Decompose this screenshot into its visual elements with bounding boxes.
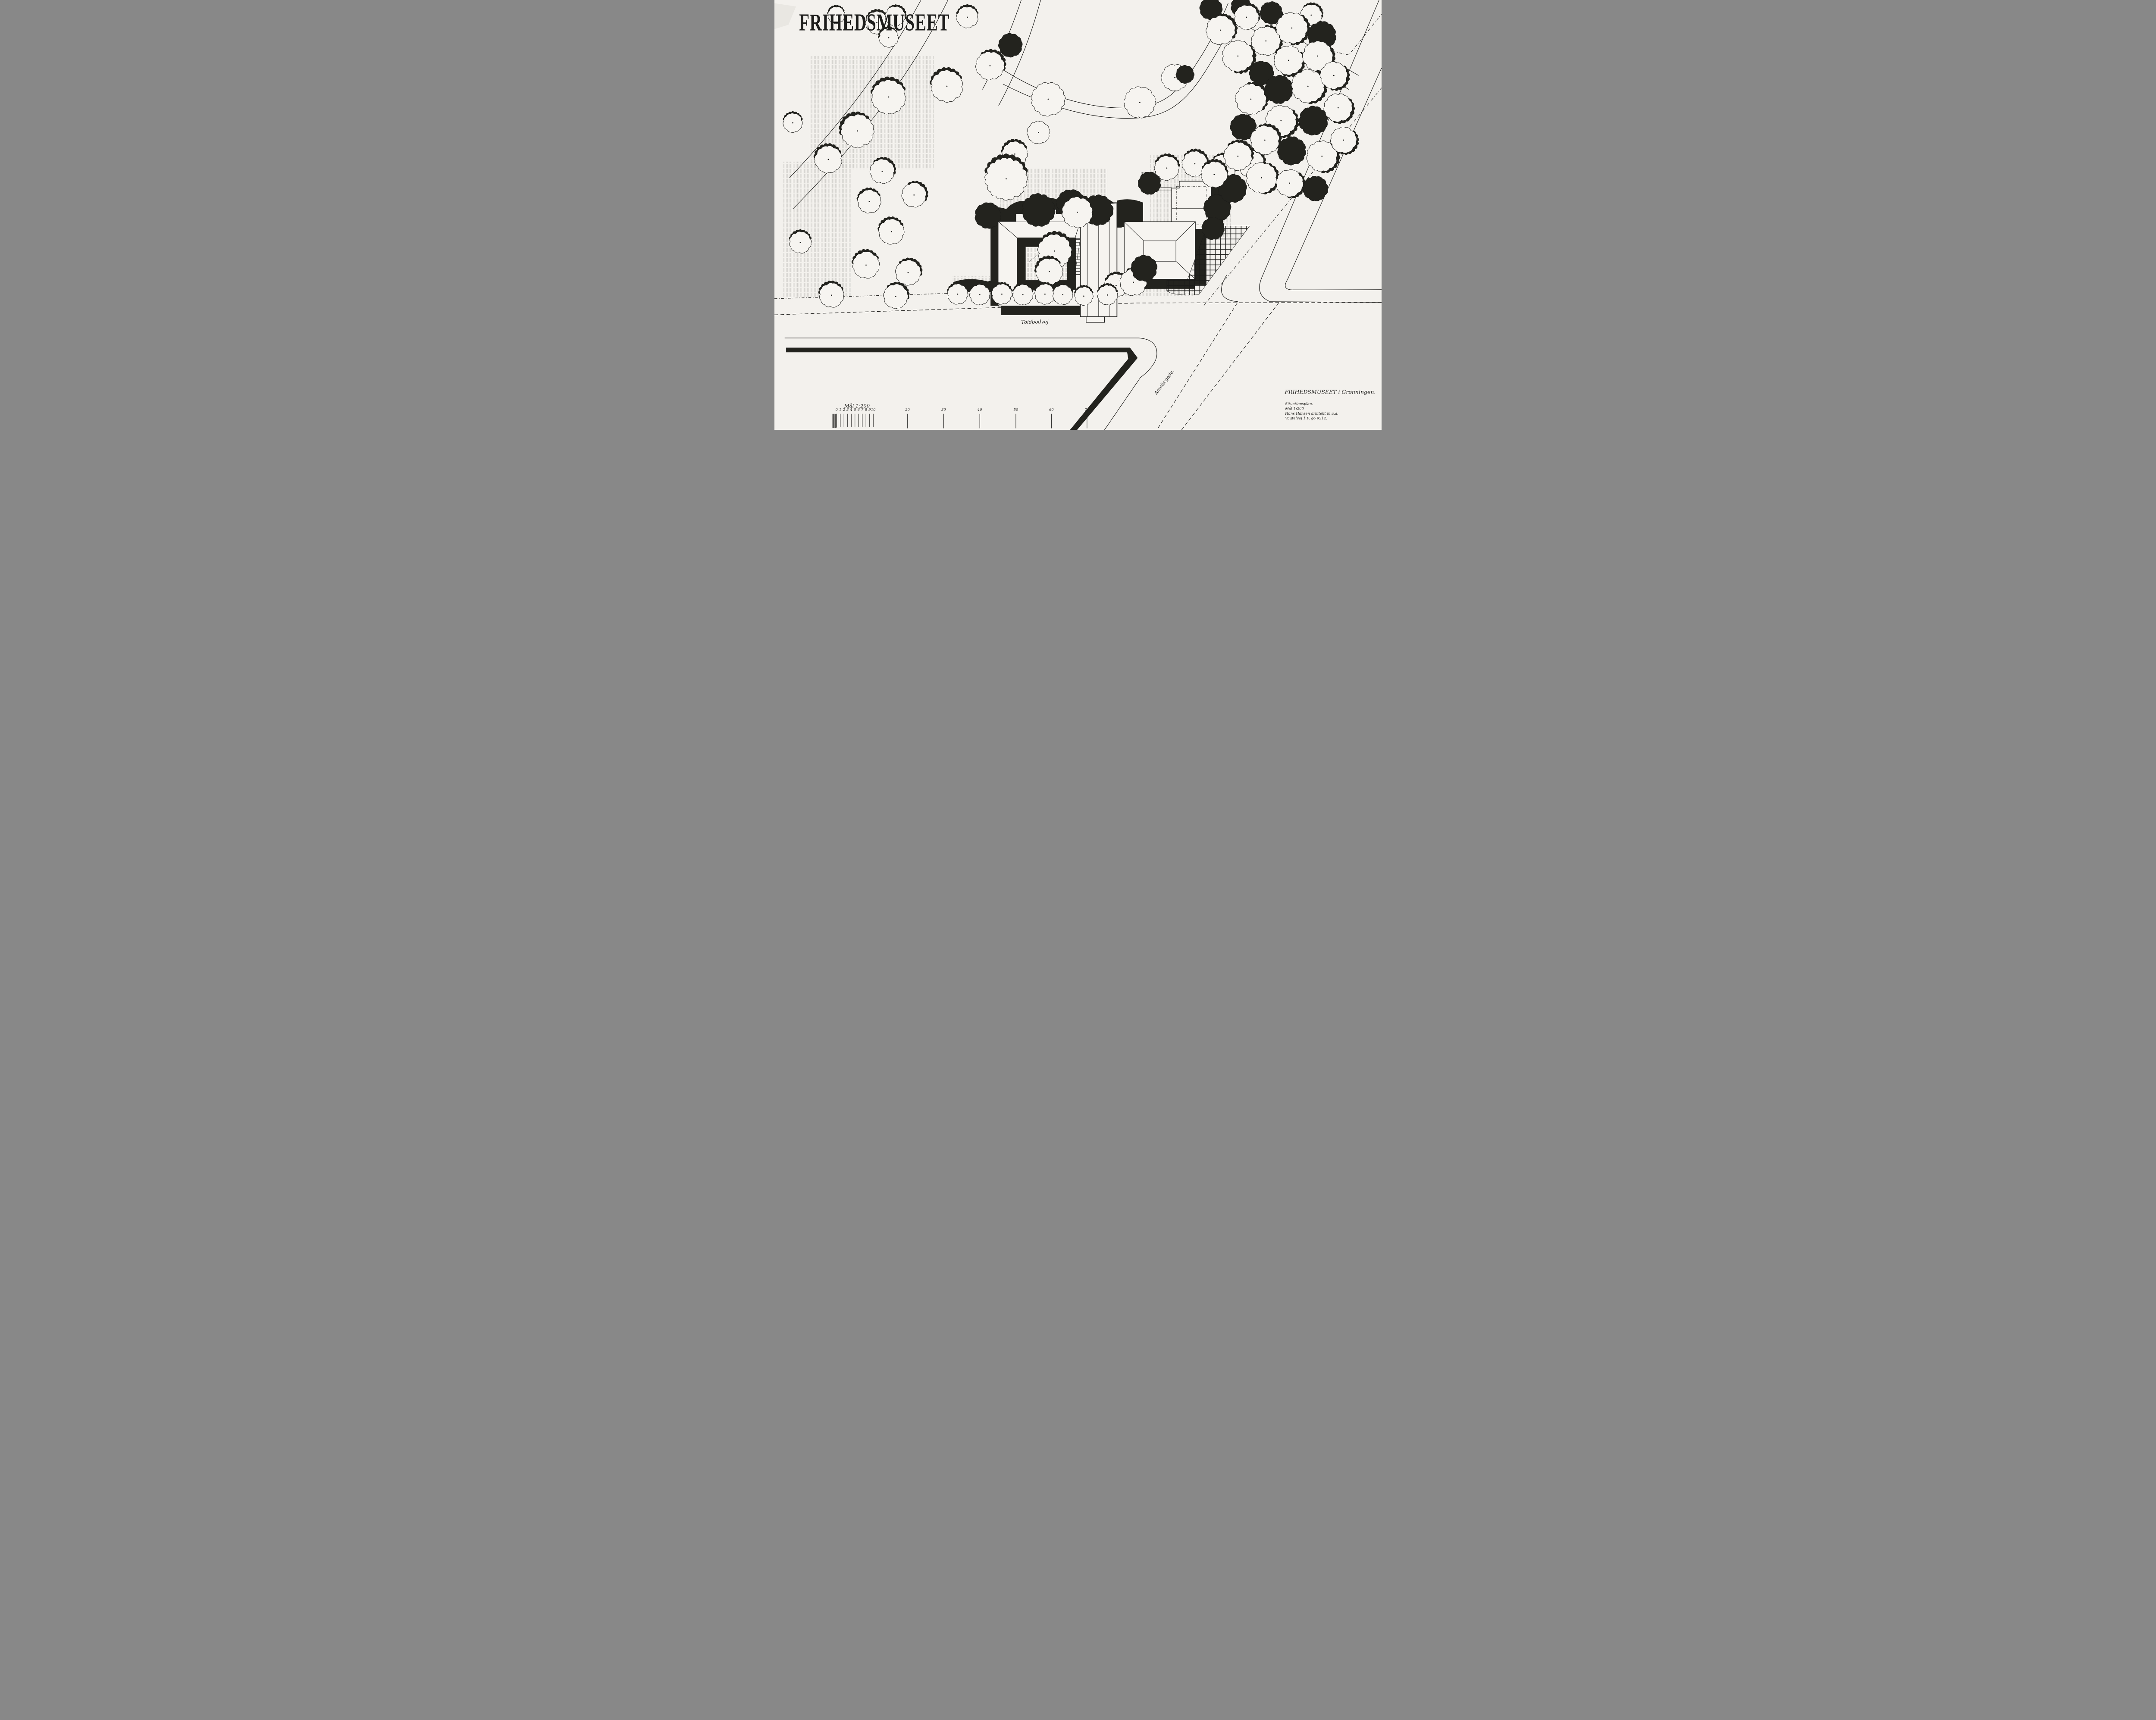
site-plan-sheet: FRIHEDSMUSEET Toldbodvej Amaliegade. Mål… xyxy=(774,0,1382,430)
tree-trunk-dot xyxy=(1310,15,1312,16)
plan-title: FRIHEDSMUSEET xyxy=(799,9,950,36)
tree-trunk-dot xyxy=(1343,140,1344,141)
tree-trunk-dot xyxy=(990,65,991,66)
tree-trunk-dot xyxy=(1338,107,1339,109)
scale-minor-label: 10 xyxy=(871,407,875,412)
tree-trunk-dot xyxy=(865,265,867,266)
tree-trunk-dot xyxy=(1265,41,1266,42)
title-block-address: Vagtelvej 1 F. go 9512. xyxy=(1285,416,1327,421)
tree-trunk-dot xyxy=(1288,60,1289,61)
tree-trunk-dot xyxy=(869,201,870,202)
site-plan-drawing: FRIHEDSMUSEET Toldbodvej Amaliegade. Mål… xyxy=(774,0,1382,430)
tree-trunk-dot xyxy=(792,122,793,124)
slab-entrance-foot xyxy=(1086,317,1104,322)
tree-trunk-dot xyxy=(1054,250,1056,252)
dark-tree xyxy=(1202,217,1224,240)
tree-trunk-dot xyxy=(1083,295,1084,297)
tree-trunk-dot xyxy=(1077,212,1078,213)
scale-minor-label: 8 xyxy=(865,407,867,412)
scale-minor-label: 5 xyxy=(854,407,856,412)
tree-trunk-dot xyxy=(1044,294,1046,295)
street-label-toldbodvej: Toldbodvej xyxy=(1021,319,1049,325)
tree-trunk-dot xyxy=(828,159,829,160)
tree-trunk-dot xyxy=(888,97,890,98)
scale-minor-label: 6 xyxy=(858,407,860,412)
tree-trunk-dot xyxy=(1264,140,1266,141)
scale-major-label: 20 xyxy=(905,407,909,412)
scale-minor-label: 4 xyxy=(850,407,852,412)
tree-trunk-dot xyxy=(1022,294,1024,295)
ground-hatch-west xyxy=(783,162,852,297)
tree-trunk-dot xyxy=(800,242,801,243)
title-block-sheet: Situationsplan. xyxy=(1285,402,1313,406)
tree-trunk-dot xyxy=(891,231,892,232)
tree-trunk-dot xyxy=(1133,282,1134,283)
tree-trunk-dot xyxy=(1237,156,1238,157)
tree-trunk-dot xyxy=(913,194,915,196)
title-block-architect: Hans Hansen arkitekt m.a.a. xyxy=(1285,412,1338,416)
tree-trunk-dot xyxy=(1166,168,1167,169)
tree-trunk-dot xyxy=(888,37,890,38)
tree-trunk-dot xyxy=(957,294,959,295)
scale-major-label: 30 xyxy=(941,407,946,412)
tree-trunk-dot xyxy=(831,294,832,296)
tree-trunk-dot xyxy=(1174,77,1175,78)
scale-minor-label: 7 xyxy=(861,407,864,412)
tree-trunk-dot xyxy=(1289,183,1290,184)
tree-trunk-dot xyxy=(857,130,858,131)
scale-minor-label: 0 xyxy=(836,407,838,412)
tree-trunk-dot xyxy=(1250,99,1251,100)
tree-trunk-dot xyxy=(1116,285,1117,286)
tree-trunk-dot xyxy=(1006,178,1007,180)
tree-trunk-dot xyxy=(1038,132,1039,133)
tree-trunk-dot xyxy=(1139,102,1141,103)
tree-trunk-dot xyxy=(1062,294,1063,295)
tree-trunk-dot xyxy=(1321,156,1322,157)
tree-trunk-dot xyxy=(1333,75,1335,76)
tree-trunk-dot xyxy=(1291,28,1292,29)
tree-trunk-dot xyxy=(1194,163,1195,165)
tree-trunk-dot xyxy=(967,17,968,18)
scale-minor-label: 9 xyxy=(868,407,871,412)
tree-trunk-dot xyxy=(1049,271,1050,272)
scale-minor-label: 2 xyxy=(843,407,845,412)
tree-trunk-dot xyxy=(1014,153,1015,155)
scale-major-label: 60 xyxy=(1049,407,1053,412)
tree-trunk-dot xyxy=(1107,294,1108,296)
tree-trunk-dot xyxy=(1250,163,1251,165)
title-block-scale: Mål 1:200 xyxy=(1285,406,1304,411)
dark-tree xyxy=(975,203,1001,228)
tree-trunk-dot xyxy=(946,86,948,87)
tree-trunk-dot xyxy=(1246,17,1247,18)
tree-trunk-dot xyxy=(1317,56,1318,57)
title-block-project: FRIHEDSMUSEET i Grønningen. xyxy=(1285,389,1376,395)
scale-major-label: 40 xyxy=(977,407,982,412)
tree-trunk-dot xyxy=(908,272,909,273)
tree-trunk-dot xyxy=(1261,177,1262,178)
tree-trunk-dot xyxy=(1220,30,1221,31)
tree-trunk-dot xyxy=(882,171,883,172)
scale-major-label: 50 xyxy=(1014,407,1018,412)
tree-trunk-dot xyxy=(1307,86,1309,87)
tree-trunk-dot xyxy=(895,296,896,297)
tree-trunk-dot xyxy=(1237,56,1238,57)
tree-trunk-dot xyxy=(1280,120,1282,122)
museum-south-shadow xyxy=(1001,306,1081,315)
tree-trunk-dot xyxy=(1048,99,1049,100)
scale-minor-label: 3 xyxy=(846,407,849,412)
tree-trunk-dot xyxy=(979,294,981,295)
scale-major-label: 70 xyxy=(1085,407,1089,412)
tree-trunk-dot xyxy=(1213,174,1215,175)
scale-minor-label: 1 xyxy=(839,407,841,412)
tree-trunk-dot xyxy=(1001,294,1003,295)
